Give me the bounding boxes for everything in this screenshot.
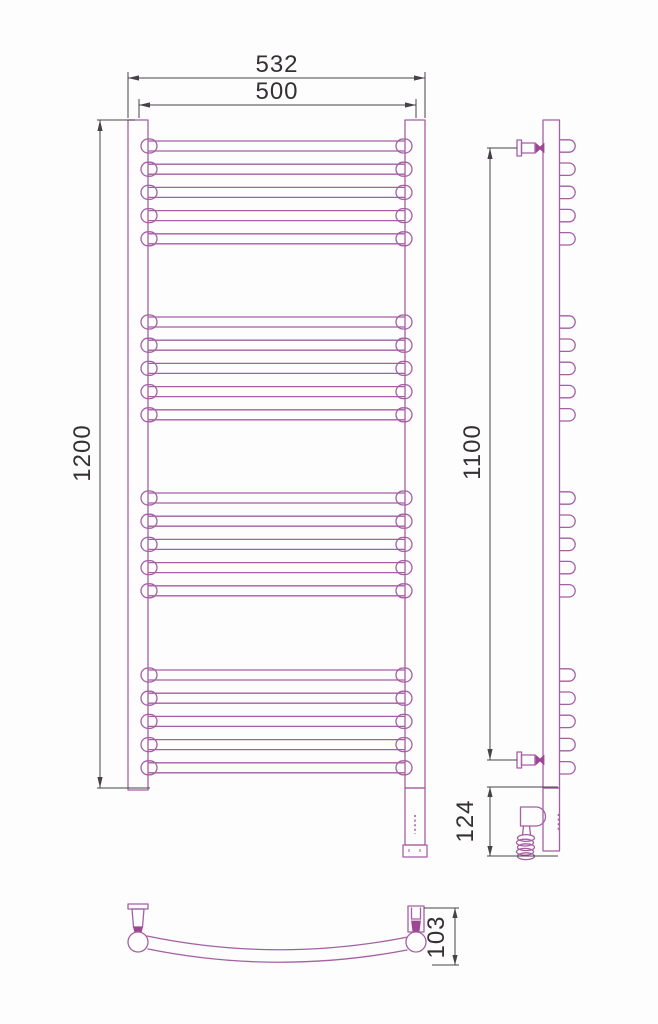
front-crossbars [141, 139, 412, 775]
rail-bar-stub [560, 186, 576, 198]
side-view [517, 120, 576, 860]
rail-bar-stub [560, 385, 576, 397]
rail-bar-stub [560, 515, 576, 527]
rail-bar-stub [560, 715, 576, 727]
front-view [128, 120, 427, 857]
rail-bar [149, 164, 404, 174]
dimension-124: 124 [452, 787, 558, 856]
rail-bar [149, 187, 404, 197]
rail-bar [149, 670, 404, 680]
rail-bar [149, 211, 404, 221]
heater-cap-marks [409, 849, 420, 852]
drawing-page: 532 500 1200 1100 124 103 [0, 0, 658, 1024]
curved-bar-back-edge [148, 949, 407, 962]
rail-bar [149, 363, 404, 373]
rail-bar [149, 740, 404, 750]
dimension-label-depth: 103 [423, 915, 450, 958]
dimension-label-total-height: 1200 [69, 424, 96, 481]
rail-bar [149, 340, 404, 350]
rail-bar [149, 493, 404, 503]
rail-bar [149, 693, 404, 703]
rail-bar [149, 387, 404, 397]
rail-bar-stub [560, 140, 576, 152]
front-right-post [405, 120, 425, 788]
front-left-post [128, 120, 148, 790]
heating-element [517, 807, 559, 860]
rail-bar [149, 586, 404, 596]
rail-bar-stub [560, 316, 576, 328]
dimension-500: 500 [139, 78, 416, 118]
rail-bar [149, 141, 404, 151]
rail-bar-stub [560, 339, 576, 351]
front-heater-cap [403, 845, 427, 857]
rail-bar [149, 516, 404, 526]
rail-bar-stub [560, 362, 576, 374]
wall-bracket-top [517, 140, 544, 156]
rail-bar [149, 716, 404, 726]
rail-bar [149, 317, 404, 327]
wall-bracket-bottom [517, 752, 544, 768]
dimension-1200: 1200 [69, 120, 150, 788]
rail-bar-stub [560, 738, 576, 750]
dimension-label-heater-section: 124 [452, 799, 479, 842]
rail-bar-stub [560, 692, 576, 704]
rail-bar-stub [560, 669, 576, 681]
dimension-103: 103 [423, 908, 459, 965]
top-view-left-post [128, 904, 148, 952]
rail-bar-stub [560, 492, 576, 504]
side-post [543, 120, 560, 788]
rail-bar [149, 539, 404, 549]
rail-bar-stub [560, 233, 576, 245]
technical-drawing: 532 500 1200 1100 124 103 [0, 0, 658, 1024]
rail-bar [149, 763, 404, 773]
cable-neck [523, 826, 531, 835]
rail-bar-stub [560, 538, 576, 550]
side-bar-stubs [560, 140, 576, 774]
dimension-1100: 1100 [459, 148, 517, 760]
heater-box [521, 807, 546, 826]
dimension-label-outer-width: 532 [255, 51, 298, 78]
dimension-label-inner-width: 500 [255, 78, 298, 105]
rail-bar-stub [560, 762, 576, 774]
top-view [128, 904, 426, 962]
rail-bar-stub [560, 585, 576, 597]
rail-bar-stub [560, 163, 576, 175]
rail-bar [149, 410, 404, 420]
rail-bar-stub [560, 209, 576, 221]
rail-bar-stub [560, 561, 576, 573]
dimension-label-mounting-height: 1100 [459, 424, 486, 480]
rail-bar-stub [560, 409, 576, 421]
rail-bar [149, 234, 404, 244]
curved-bar-front-edge [147, 936, 408, 950]
rail-bar [149, 563, 404, 573]
